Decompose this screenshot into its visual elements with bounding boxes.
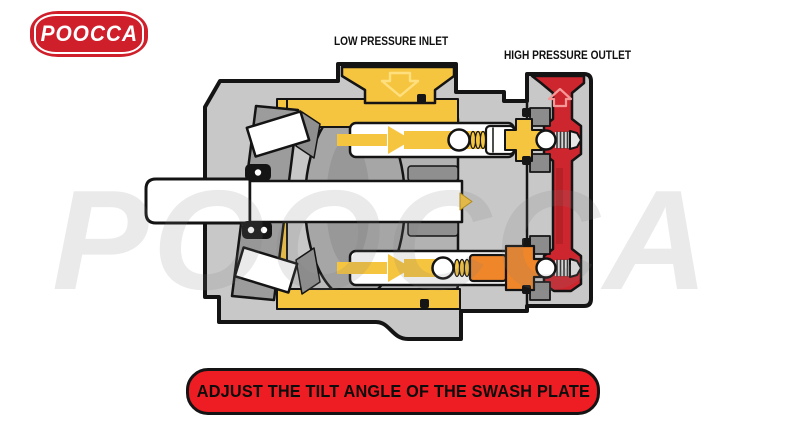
brand-logo-ring: POOCCA — [34, 14, 144, 54]
caption-banner-text: ADJUST THE TILT ANGLE OF THE SWASH PLATE — [196, 381, 589, 402]
seal-ball-bottom-2 — [261, 227, 267, 233]
seal-ball-bottom-1 — [248, 227, 254, 233]
brand-logo: POOCCA — [30, 11, 148, 57]
o-ring-1 — [417, 94, 426, 103]
seal-ball-top — [255, 169, 261, 175]
valve-ball-bottom — [537, 259, 556, 278]
check-valve-top — [537, 131, 582, 150]
brand-logo-text: POOCCA — [40, 21, 137, 47]
piston-bottom — [470, 255, 506, 281]
o-ring-2 — [522, 108, 531, 117]
label-high-pressure-outlet: HIGH PRESSURE OUTLET — [504, 50, 631, 62]
bore-ball-top — [449, 130, 470, 151]
o-ring-3 — [522, 156, 531, 165]
bore-ball-bottom — [433, 258, 454, 279]
shaft-seal-bottom — [242, 221, 272, 239]
label-low-pressure-inlet: LOW PRESSURE INLET — [334, 36, 448, 48]
drive-shaft — [146, 179, 250, 223]
shaft-spline — [250, 181, 462, 222]
gallery-shade — [556, 168, 563, 244]
piston-bore-top — [337, 123, 514, 157]
valve-ball-top — [537, 131, 556, 150]
o-ring-5 — [522, 285, 531, 294]
shaft-sleeve-top — [408, 166, 458, 181]
o-ring-4 — [522, 238, 531, 247]
o-ring-6 — [420, 299, 429, 308]
piston-bore-bottom — [337, 251, 514, 285]
check-valve-bottom — [537, 259, 582, 278]
pump-cutaway-figure: POOCCA POOCCA LOW PRESSURE INLET HIGH PR… — [0, 0, 800, 444]
caption-banner: ADJUST THE TILT ANGLE OF THE SWASH PLATE — [186, 368, 600, 415]
